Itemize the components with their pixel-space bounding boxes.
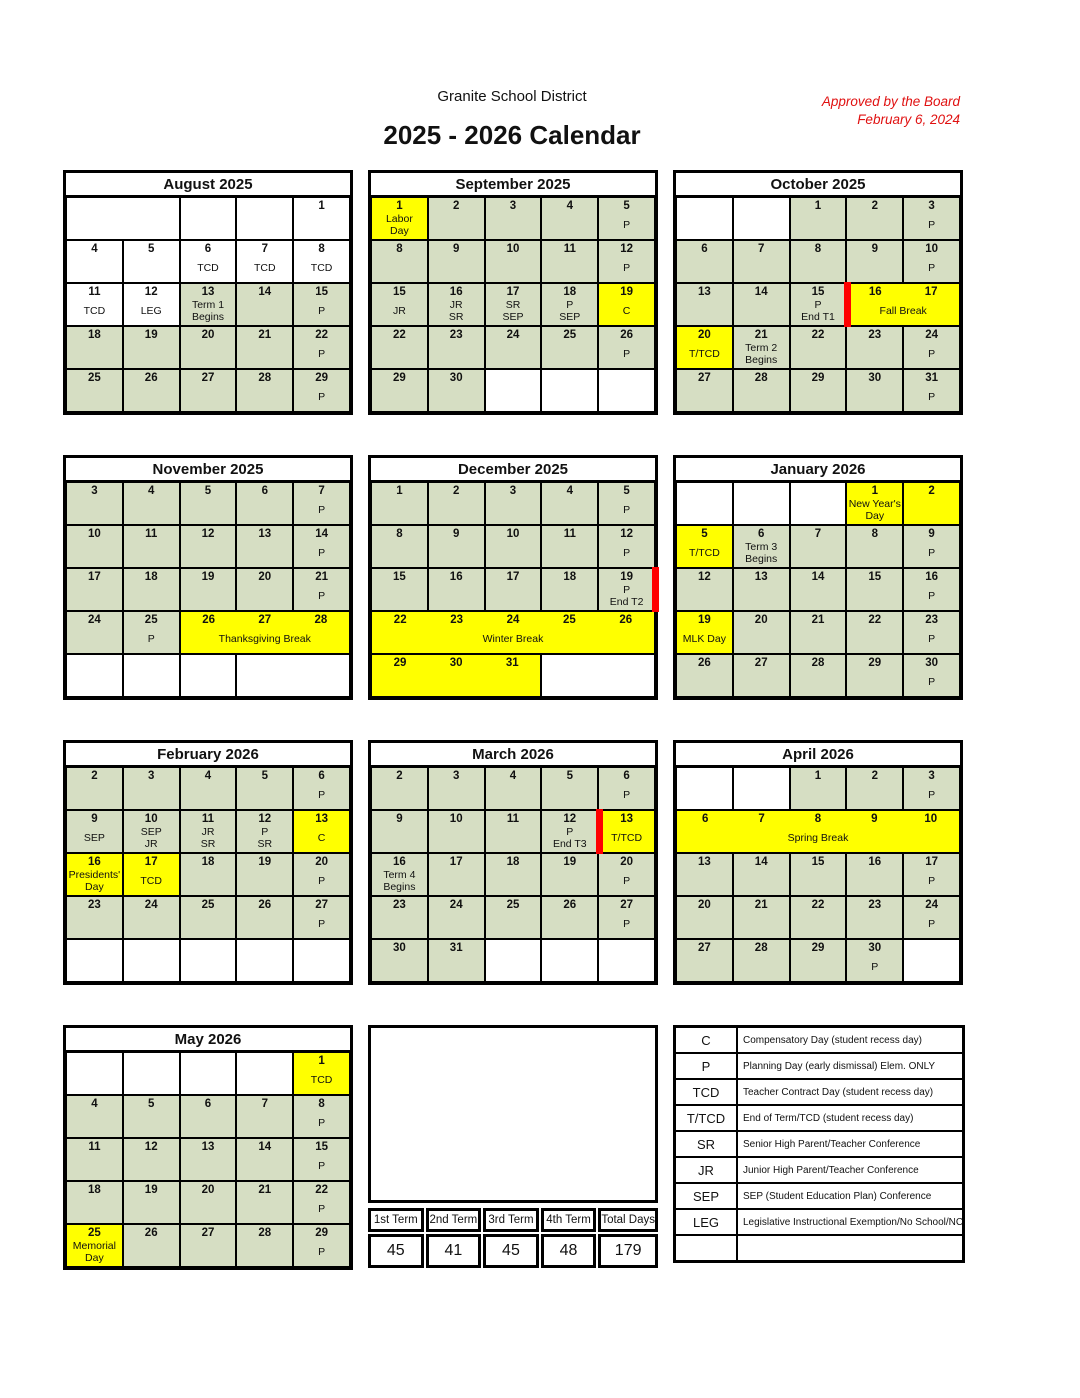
- day-label: P: [294, 869, 349, 895]
- calendar-day-cell: 26: [676, 654, 733, 697]
- day-number: 6: [677, 811, 733, 826]
- day-number: 26: [124, 1225, 179, 1240]
- day-number: 27: [181, 370, 236, 385]
- calendar-day-cell: 24: [428, 896, 485, 939]
- calendar-day-cell: 21: [236, 1181, 293, 1224]
- calendar-day-cell: 31: [428, 939, 485, 982]
- day-number: 19: [599, 284, 654, 299]
- day-number: 28: [734, 370, 789, 385]
- calendar-empty-cell: [541, 654, 655, 697]
- month-september-2025: September 20251Labor Day2345P89101112P15…: [368, 170, 658, 415]
- day-number: 15: [847, 569, 902, 584]
- day-number: 25: [67, 1225, 122, 1240]
- day-number: 28: [237, 370, 292, 385]
- calendar-day-cell: 18: [66, 1181, 123, 1224]
- day-number: 21: [734, 327, 789, 342]
- day-label: C: [294, 826, 349, 852]
- calendar-day-cell: 19P End T2: [598, 568, 655, 611]
- legend-description: Legislative Instructional Exemption/No S…: [737, 1209, 963, 1235]
- day-number: 4: [542, 483, 597, 498]
- day-number: 17: [486, 569, 541, 584]
- calendar-day-cell: 13: [733, 568, 790, 611]
- calendar-day-cell: 2: [428, 197, 485, 240]
- day-number: 14: [294, 526, 349, 541]
- calendar-day-cell: 16Presidents' Day: [66, 853, 123, 896]
- calendar-day-cell: 12LEG: [123, 283, 180, 326]
- day-number: 29: [372, 370, 427, 385]
- calendar-empty-cell: [676, 197, 733, 240]
- calendar-day-cell: 12P: [598, 525, 655, 568]
- calendar-day-cell: 9: [371, 810, 428, 853]
- month-title: May 2026: [66, 1028, 350, 1052]
- day-label: P: [294, 1197, 349, 1223]
- calendar-day-cell: 5: [123, 240, 180, 283]
- summary-column: 1st Term2nd Term3rd Term4th TermTotal Da…: [368, 1025, 658, 1268]
- calendar-day-cell: 3: [66, 482, 123, 525]
- calendar-day-cell: 2: [903, 482, 960, 525]
- calendar-day-cell: 20: [676, 896, 733, 939]
- calendar-day-cell: 13T/TCD: [598, 810, 655, 853]
- day-number: 16: [67, 854, 122, 869]
- calendar-day-cell: 22P: [293, 1181, 350, 1224]
- day-number: 9: [429, 241, 484, 256]
- month-title: November 2025: [66, 458, 350, 482]
- calendar-day-cell: 20: [180, 326, 237, 369]
- day-number: 1: [847, 483, 902, 498]
- calendar-day-cell: 8: [846, 525, 903, 568]
- month-november-2025: November 202534567P1011121314P1718192021…: [63, 455, 353, 700]
- day-number: 5: [542, 768, 597, 783]
- day-number: 20: [677, 327, 732, 342]
- day-number: 1: [372, 198, 427, 213]
- month-title: December 2025: [371, 458, 655, 482]
- day-label: P: [904, 783, 959, 809]
- calendar-day-cell: 25: [541, 326, 598, 369]
- calendar-empty-cell: [66, 1052, 123, 1095]
- calendar-day-cell: 18: [485, 853, 542, 896]
- day-label: JR SR: [429, 299, 484, 325]
- calendar-day-cell: 21: [790, 611, 847, 654]
- calendar-day-cell: 24P: [903, 326, 960, 369]
- month-january-2026: January 20261New Year's Day25T/TCD6Term …: [673, 455, 963, 700]
- calendar-day-cell: 4: [541, 197, 598, 240]
- day-number: 15: [294, 1139, 349, 1154]
- calendar-day-cell: 16: [428, 568, 485, 611]
- calendar-day-cell: 27: [676, 369, 733, 412]
- calendar-day-cell: 3: [485, 197, 542, 240]
- calendar-day-cell: 21: [236, 326, 293, 369]
- day-number: 8: [372, 526, 427, 541]
- day-number: 17: [429, 854, 484, 869]
- day-number: 26: [677, 655, 732, 670]
- month-may-2026: May 20261TCD45678P1112131415P1819202122P…: [63, 1025, 353, 1270]
- day-label: P: [904, 213, 959, 239]
- month-december-2025: December 202512345P89101112P1516171819P …: [368, 455, 658, 700]
- day-label: Labor Day: [372, 213, 427, 239]
- calendar-day-cell: 10: [66, 525, 123, 568]
- day-label: P: [599, 912, 654, 938]
- calendar-day-cell: 19: [541, 853, 598, 896]
- day-number: 13: [734, 569, 789, 584]
- month-title: January 2026: [676, 458, 960, 482]
- calendar-day-cell: 9P: [903, 525, 960, 568]
- month-march-2026: March 202623456P9101112P End T313T/TCD16…: [368, 740, 658, 985]
- day-number: 28: [734, 940, 789, 955]
- day-number: 19: [599, 569, 654, 584]
- calendar-day-cell: 30: [371, 939, 428, 982]
- day-label: P: [599, 869, 654, 895]
- legend-symbol: LEG: [675, 1209, 737, 1235]
- day-number: 25: [124, 612, 179, 627]
- day-number: 12: [124, 284, 179, 299]
- day-number: 16: [372, 854, 427, 869]
- calendar-day-cell: 29P: [293, 1224, 350, 1267]
- calendar-day-cell: 6P: [293, 767, 350, 810]
- calendar-day-cell: 1: [790, 767, 847, 810]
- day-number: 27: [734, 655, 789, 670]
- day-number: 16: [847, 854, 902, 869]
- day-number: 8: [791, 241, 846, 256]
- day-number: 23: [429, 327, 484, 342]
- calendar-day-cell: 15JR: [371, 283, 428, 326]
- calendar-day-cell: 10P: [903, 240, 960, 283]
- day-number: 7: [237, 1096, 292, 1111]
- day-number: 26: [181, 612, 237, 627]
- day-number: 4: [67, 1096, 122, 1111]
- calendar-day-cell: 12: [676, 568, 733, 611]
- calendar-day-cell: 13: [676, 853, 733, 896]
- calendar-day-cell: 16JR SR: [428, 283, 485, 326]
- day-number: 22: [294, 1182, 349, 1197]
- day-label: TCD: [181, 256, 236, 282]
- day-number: 17: [903, 284, 959, 299]
- calendar-day-cell: 2: [428, 482, 485, 525]
- day-number: 24: [67, 612, 122, 627]
- day-number: 21: [791, 612, 846, 627]
- day-label: SEP: [67, 826, 122, 852]
- calendar-empty-cell: [180, 1052, 237, 1095]
- calendar-day-cell: 24P: [903, 896, 960, 939]
- day-number: 20: [734, 612, 789, 627]
- calendar-day-cell: 29: [790, 369, 847, 412]
- day-number: 19: [124, 1182, 179, 1197]
- calendar-day-cell: 14: [236, 1138, 293, 1181]
- calendar-day-cell: 22: [790, 896, 847, 939]
- calendar-day-cell: 27P: [598, 896, 655, 939]
- calendar-day-cell: 17: [428, 853, 485, 896]
- calendar-day-cell: 29P: [293, 369, 350, 412]
- day-number: 17: [124, 854, 179, 869]
- day-number: 13: [677, 854, 732, 869]
- day-number: 13: [599, 811, 654, 826]
- calendar-day-cell: 23: [846, 326, 903, 369]
- calendar-day-cell: 4: [485, 767, 542, 810]
- calendar-day-cell: 29: [371, 369, 428, 412]
- calendar-day-cell: 1TCD: [293, 1052, 350, 1095]
- day-number: 13: [181, 1139, 236, 1154]
- day-number: 5: [181, 483, 236, 498]
- day-label: Term 4 Begins: [372, 869, 427, 895]
- calendar-day-cell: 17: [485, 568, 542, 611]
- day-number: 12: [542, 811, 597, 826]
- day-number: 20: [294, 854, 349, 869]
- day-label: P: [294, 498, 349, 524]
- calendar-day-cell: 18: [541, 568, 598, 611]
- calendar-day-cell: 26: [123, 1224, 180, 1267]
- calendar-day-cell: 24: [485, 326, 542, 369]
- calendar-day-cell: 7: [236, 1095, 293, 1138]
- day-number: 18: [542, 284, 597, 299]
- day-number: 24: [124, 897, 179, 912]
- day-number: 8: [847, 526, 902, 541]
- day-number: 15: [372, 284, 427, 299]
- calendar-day-cell: 2: [371, 767, 428, 810]
- day-number: 20: [237, 569, 292, 584]
- calendar-day-cell: 21: [733, 896, 790, 939]
- day-number: 19: [124, 327, 179, 342]
- day-label: Term 1 Begins: [181, 299, 236, 325]
- day-number: 6: [294, 768, 349, 783]
- day-number: 31: [484, 655, 540, 670]
- month-october-2025: October 2025123P678910P131415P End T1161…: [673, 170, 963, 415]
- calendar-day-cell: 6: [180, 1095, 237, 1138]
- month-body: 12345P89101112P1516171819P End T22223242…: [371, 482, 655, 697]
- calendar-day-cell: 23: [371, 896, 428, 939]
- day-number: 31: [904, 370, 959, 385]
- day-number: 22: [372, 327, 427, 342]
- calendar-day-cell: 15: [790, 853, 847, 896]
- day-number: 24: [429, 897, 484, 912]
- legend-description: Planning Day (early dismissal) Elem. ONL…: [737, 1053, 963, 1079]
- calendar-day-cell: 11: [541, 525, 598, 568]
- day-number: 10: [124, 811, 179, 826]
- calendar-day-cell: 27: [733, 654, 790, 697]
- day-number: 30: [847, 370, 902, 385]
- calendar-day-cell: 10SEP JR: [123, 810, 180, 853]
- day-number: 10: [429, 811, 484, 826]
- day-label: P: [904, 342, 959, 368]
- day-number: 23: [428, 612, 484, 627]
- term-header-cell: 4th Term: [541, 1208, 597, 1232]
- calendar-day-cell: 6: [236, 482, 293, 525]
- calendar-empty-cell: [541, 939, 598, 982]
- day-number: 11: [67, 1139, 122, 1154]
- calendar-empty-cell: [123, 654, 180, 697]
- calendar-day-cell: 2: [66, 767, 123, 810]
- month-body: 1456TCD7TCD8TCD11TCD12LEG13Term 1 Begins…: [66, 197, 350, 412]
- day-number: 29: [847, 655, 902, 670]
- day-label: JR: [372, 299, 427, 325]
- day-label: Fall Break: [847, 299, 959, 325]
- day-number: 22: [294, 327, 349, 342]
- day-label: Spring Break: [677, 826, 959, 852]
- day-number: 1: [294, 1053, 349, 1068]
- day-number: 15: [791, 284, 846, 299]
- day-number: 5: [599, 483, 654, 498]
- calendar-day-cell: 2: [846, 767, 903, 810]
- calendar-empty-cell: [236, 939, 293, 982]
- day-number: 29: [372, 655, 428, 670]
- day-number: 7: [237, 241, 292, 256]
- legend-description: Teacher Contract Day (student recess day…: [737, 1079, 963, 1105]
- calendar-day-cell: 19: [123, 1181, 180, 1224]
- day-label: Memorial Day: [67, 1240, 122, 1266]
- legend-symbol: [675, 1235, 737, 1261]
- day-label: P: [294, 1240, 349, 1266]
- day-number: 3: [124, 768, 179, 783]
- calendar-day-cell: 18P SEP: [541, 283, 598, 326]
- day-number: 16: [429, 284, 484, 299]
- day-number: 11: [181, 811, 236, 826]
- day-number: 22: [372, 612, 428, 627]
- calendar-empty-cell: [236, 197, 293, 240]
- calendar-day-cell: 4: [180, 767, 237, 810]
- calendar-day-cell: 11: [123, 525, 180, 568]
- calendar-day-cell: 13Term 1 Begins: [180, 283, 237, 326]
- term-summary-table: 1st Term2nd Term3rd Term4th TermTotal Da…: [368, 1208, 658, 1268]
- calendar-empty-cell: [293, 939, 350, 982]
- month-august-2025: August 20251456TCD7TCD8TCD11TCD12LEG13Te…: [63, 170, 353, 415]
- legend-description: Junior High Parent/Teacher Conference: [737, 1157, 963, 1183]
- day-number: 11: [542, 526, 597, 541]
- month-body: 1TCD45678P1112131415P1819202122P25Memori…: [66, 1052, 350, 1267]
- calendar-day-cell: 8: [790, 240, 847, 283]
- calendar-day-cell: 27P: [293, 896, 350, 939]
- calendar-day-cell: 7P: [293, 482, 350, 525]
- day-number: 18: [486, 854, 541, 869]
- day-number: 14: [237, 1139, 292, 1154]
- month-title: March 2026: [371, 743, 655, 767]
- calendar-day-cell: 262728Thanksgiving Break: [180, 611, 350, 654]
- day-number: 10: [903, 811, 959, 826]
- day-number: 18: [67, 327, 122, 342]
- day-label: P: [599, 498, 654, 524]
- legend-symbol: JR: [675, 1157, 737, 1183]
- day-number: 30: [429, 370, 484, 385]
- day-label: TCD: [124, 869, 179, 895]
- day-number: 7: [733, 811, 789, 826]
- day-label: P End T2: [599, 584, 654, 610]
- calendar-day-cell: 15: [371, 568, 428, 611]
- day-label: P: [904, 584, 959, 610]
- day-label: TCD: [294, 256, 349, 282]
- day-number: 30: [428, 655, 484, 670]
- day-number: 2: [429, 483, 484, 498]
- calendar-day-cell: 23: [66, 896, 123, 939]
- calendar-day-cell: 19: [180, 568, 237, 611]
- day-label: P: [599, 256, 654, 282]
- day-number: 6: [599, 768, 654, 783]
- calendar-day-cell: 8TCD: [293, 240, 350, 283]
- day-number: 4: [181, 768, 236, 783]
- notes-box: [368, 1025, 658, 1203]
- calendar-day-cell: 4: [123, 482, 180, 525]
- day-number: 5: [599, 198, 654, 213]
- calendar-empty-cell: [733, 767, 790, 810]
- day-number: 13: [677, 284, 732, 299]
- day-number: 26: [598, 612, 654, 627]
- day-number: 8: [790, 811, 846, 826]
- calendar-day-cell: 1Labor Day: [371, 197, 428, 240]
- calendar-day-cell: 7: [733, 240, 790, 283]
- calendar-day-cell: 4: [66, 240, 123, 283]
- day-label: P: [904, 869, 959, 895]
- calendar-day-cell: 19MLK Day: [676, 611, 733, 654]
- day-label: P: [599, 213, 654, 239]
- day-label: P: [294, 1111, 349, 1137]
- calendar-day-cell: 28: [790, 654, 847, 697]
- calendar-day-cell: 10: [428, 810, 485, 853]
- day-number: 20: [599, 854, 654, 869]
- day-number: 4: [67, 241, 122, 256]
- day-label: T/TCD: [599, 826, 654, 852]
- day-numbers: 2223242526: [372, 612, 654, 627]
- calendar-day-cell: 18: [180, 853, 237, 896]
- calendar-day-cell: 1617Fall Break: [846, 283, 960, 326]
- calendar-day-cell: 14: [790, 568, 847, 611]
- month-body: 1New Year's Day25T/TCD6Term 3 Begins789P…: [676, 482, 960, 697]
- month-april-2026: April 2026123P678910Spring Break13141516…: [673, 740, 963, 985]
- calendar-day-cell: 28: [236, 1224, 293, 1267]
- legend-description: End of Term/TCD (student recess day): [737, 1105, 963, 1131]
- calendar-empty-cell: [903, 939, 960, 982]
- day-label: P: [599, 783, 654, 809]
- day-number: 14: [791, 569, 846, 584]
- term-header-cell: 2nd Term: [426, 1208, 482, 1232]
- calendar-day-cell: 20P: [598, 853, 655, 896]
- calendar-empty-cell: [598, 369, 655, 412]
- day-label: P End T1: [791, 299, 846, 325]
- day-number: 24: [486, 327, 541, 342]
- day-label: P SEP: [542, 299, 597, 325]
- day-number: 25: [67, 370, 122, 385]
- day-number: 25: [541, 612, 597, 627]
- day-number: 27: [599, 897, 654, 912]
- day-label: JR SR: [181, 826, 236, 852]
- day-label: P: [904, 670, 959, 696]
- calendar-day-cell: 29: [790, 939, 847, 982]
- day-label: P: [599, 541, 654, 567]
- day-label: P: [904, 256, 959, 282]
- calendar-day-cell: 9: [428, 525, 485, 568]
- term-header-cell: 1st Term: [368, 1208, 424, 1232]
- calendar-day-cell: 20T/TCD: [676, 326, 733, 369]
- calendar-empty-cell: [180, 939, 237, 982]
- legend-table: CCompensatory Day (student recess day)PP…: [673, 1025, 965, 1263]
- day-number: 14: [237, 284, 292, 299]
- day-label: P: [904, 541, 959, 567]
- day-number: 11: [124, 526, 179, 541]
- day-number: 8: [372, 241, 427, 256]
- day-number: 7: [734, 241, 789, 256]
- calendar-empty-cell: [123, 1052, 180, 1095]
- calendar-day-cell: 22: [790, 326, 847, 369]
- calendar-empty-cell: [66, 939, 123, 982]
- calendar-day-cell: 2: [846, 197, 903, 240]
- day-number: 20: [677, 897, 732, 912]
- day-label: SEP JR: [124, 826, 179, 852]
- calendar-empty-cell: [180, 654, 237, 697]
- day-number: 26: [237, 897, 292, 912]
- day-number: 6: [677, 241, 732, 256]
- term-value-cell: 45: [483, 1234, 539, 1268]
- calendar-day-cell: 5: [541, 767, 598, 810]
- day-label: P: [294, 584, 349, 610]
- calendar-day-cell: 1: [790, 197, 847, 240]
- month-body: 123P678910Spring Break1314151617P2021222…: [676, 767, 960, 982]
- day-label: New Year's Day: [847, 498, 902, 524]
- day-label: T/TCD: [677, 342, 732, 368]
